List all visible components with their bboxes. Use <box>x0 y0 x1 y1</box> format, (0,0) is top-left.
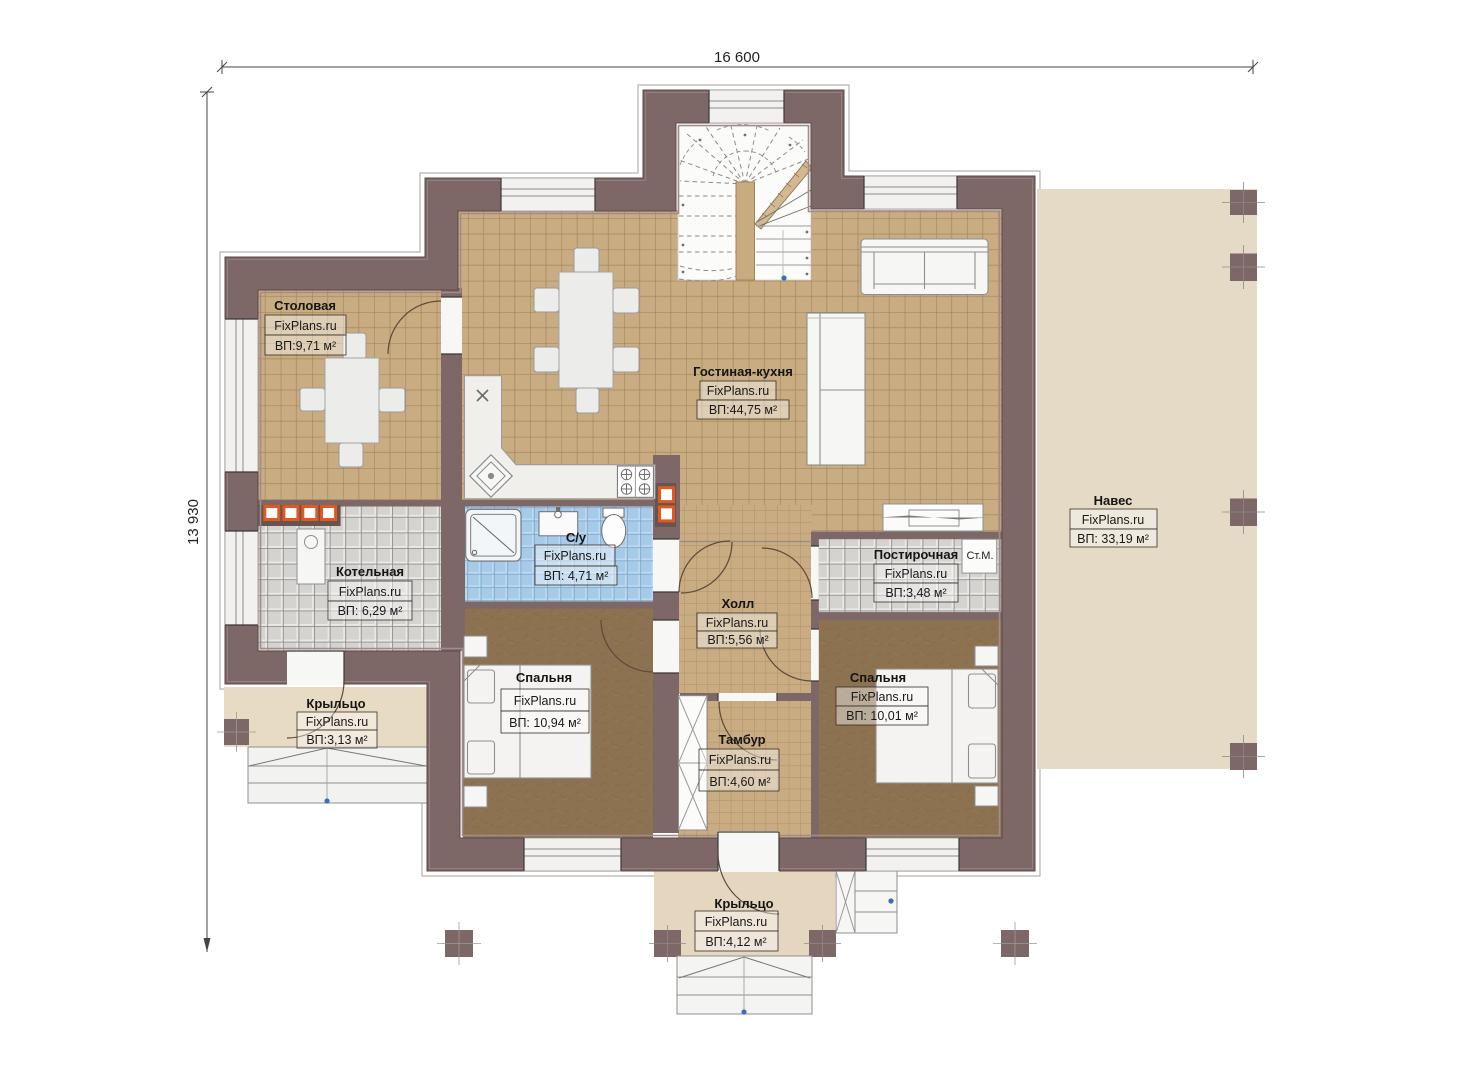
svg-text:ВП: 10,01 м²: ВП: 10,01 м² <box>846 709 918 723</box>
svg-text:Спальня: Спальня <box>850 670 906 685</box>
svg-text:16 600: 16 600 <box>714 49 760 66</box>
svg-text:Крыльцо: Крыльцо <box>306 696 365 711</box>
svg-text:Ст.М.: Ст.М. <box>966 550 993 562</box>
svg-text:ВП:9,71 м²: ВП:9,71 м² <box>275 339 336 353</box>
svg-text:FixPlans.ru: FixPlans.ru <box>709 753 772 767</box>
svg-text:ВП: 4,71 м²: ВП: 4,71 м² <box>544 569 609 583</box>
svg-text:ВП:3,48 м²: ВП:3,48 м² <box>885 586 946 600</box>
svg-text:ВП:4,12 м²: ВП:4,12 м² <box>705 935 766 949</box>
svg-text:Гостиная-кухня: Гостиная-кухня <box>693 364 793 379</box>
svg-text:С/у: С/у <box>566 530 587 545</box>
svg-text:Котельная: Котельная <box>336 564 404 579</box>
svg-text:Навес: Навес <box>1094 493 1133 508</box>
svg-text:FixPlans.ru: FixPlans.ru <box>274 319 337 333</box>
svg-text:FixPlans.ru: FixPlans.ru <box>706 616 769 630</box>
svg-text:ВП:4,60 м²: ВП:4,60 м² <box>709 775 770 789</box>
svg-text:ВП: 10,94 м²: ВП: 10,94 м² <box>509 716 581 730</box>
svg-text:FixPlans.ru: FixPlans.ru <box>306 715 369 729</box>
svg-text:Крыльцо: Крыльцо <box>714 896 773 911</box>
svg-text:Столовая: Столовая <box>274 298 336 313</box>
svg-text:ВП:3,13 м²: ВП:3,13 м² <box>306 733 367 747</box>
svg-text:13 930: 13 930 <box>185 499 202 545</box>
svg-text:FixPlans.ru: FixPlans.ru <box>851 690 914 704</box>
svg-text:Постирочная: Постирочная <box>874 547 958 562</box>
svg-text:Тамбур: Тамбур <box>718 732 765 747</box>
svg-text:FixPlans.ru: FixPlans.ru <box>705 915 768 929</box>
svg-text:ВП: 33,19 м²: ВП: 33,19 м² <box>1077 532 1149 546</box>
svg-text:FixPlans.ru: FixPlans.ru <box>339 585 402 599</box>
svg-text:FixPlans.ru: FixPlans.ru <box>885 567 948 581</box>
svg-text:FixPlans.ru: FixPlans.ru <box>514 694 577 708</box>
svg-text:Холл: Холл <box>722 596 755 611</box>
svg-text:Спальня: Спальня <box>516 670 572 685</box>
svg-text:ВП:44,75 м²: ВП:44,75 м² <box>709 403 777 417</box>
svg-text:ВП: 6,29 м²: ВП: 6,29 м² <box>338 604 403 618</box>
svg-text:FixPlans.ru: FixPlans.ru <box>707 384 770 398</box>
svg-text:FixPlans.ru: FixPlans.ru <box>544 549 607 563</box>
svg-text:FixPlans.ru: FixPlans.ru <box>1082 513 1145 527</box>
svg-text:ВП:5,56 м²: ВП:5,56 м² <box>707 633 768 647</box>
